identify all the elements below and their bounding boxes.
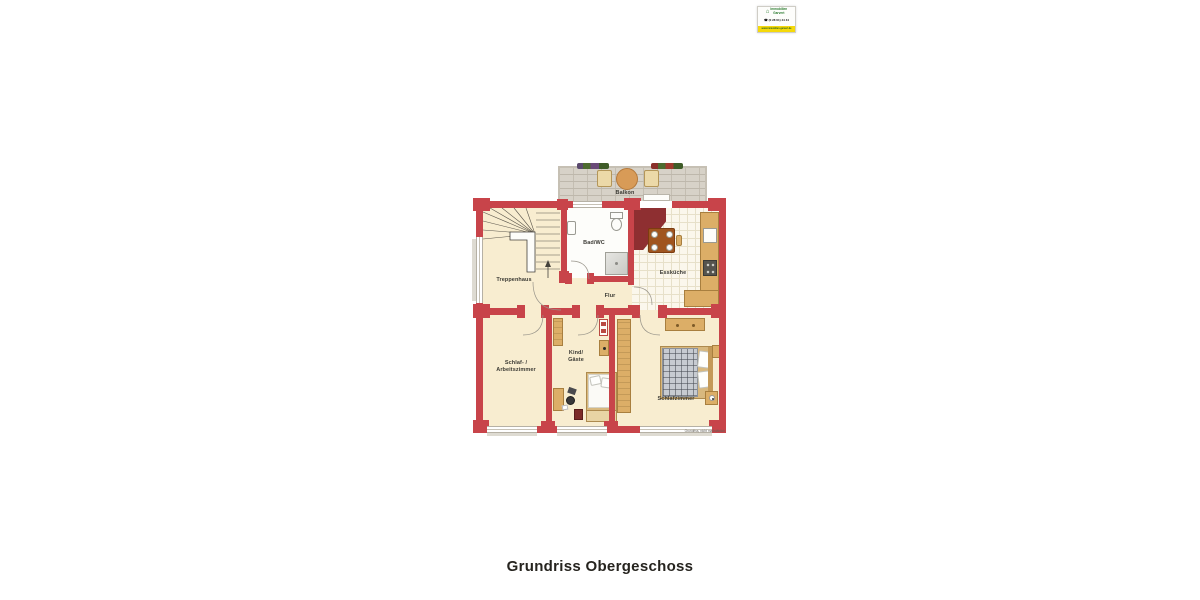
door-arc-bedroom	[640, 315, 660, 335]
agency-website: www.immobilien-garvert.de	[758, 26, 795, 32]
balcony-door-leaf	[643, 194, 670, 201]
page-title: Grundriss Obergeschoss	[0, 558, 1200, 575]
house-icon: ⌂	[766, 9, 770, 15]
agency-phone: ☎ (0 28 61) 44 44	[758, 17, 795, 23]
agency-logo-header: ⌂ ImmobilienGarvert	[758, 7, 795, 17]
window-sill	[640, 433, 712, 436]
flower-box-right	[651, 163, 683, 169]
room-label-bad-wc: Bad/WC	[583, 240, 605, 246]
window-sill	[557, 433, 607, 436]
agency-logo: ⌂ ImmobilienGarvert ☎ (0 28 61) 44 44 ww…	[757, 6, 796, 33]
door-arc-study	[523, 315, 543, 335]
room-label-kind-line2: Gäste	[568, 357, 584, 363]
door-arcs	[523, 261, 660, 335]
room-label-schlaf-line2: Arbeitszimmer	[496, 367, 536, 373]
room-label-flur: Flur	[605, 293, 616, 299]
door-arc-child-room	[578, 315, 598, 335]
door-arc-kitchen	[634, 287, 652, 305]
room-label-schlaf-line1: Schlaf- /	[505, 360, 527, 366]
room-label-schlaf-arbeitszimmer: Schlaf- /Arbeitszimmer	[496, 360, 536, 374]
floorplan-page: ⌂ ImmobilienGarvert ☎ (0 28 61) 44 44 ww…	[0, 0, 1200, 600]
room-label-balkon: Balkon	[616, 190, 635, 196]
balcony-chair-right	[644, 170, 659, 187]
room-label-schlafzimmer: Schlafzimmer	[658, 396, 695, 402]
stairs-core	[510, 232, 535, 272]
window-sill	[487, 433, 537, 436]
room-label-esskueche: Essküche	[660, 270, 686, 276]
room-label-treppenhaus: Treppenhaus	[496, 277, 531, 283]
room-label-kind-line1: Kind/	[569, 350, 583, 356]
balcony-table	[616, 168, 638, 190]
agency-name-line2: Garvert	[773, 11, 784, 15]
door-arc-stairwell	[533, 282, 561, 310]
agency-name: ImmobilienGarvert	[770, 8, 787, 15]
plan-disclaimer: Grundriss, nicht maßstäblich	[685, 429, 725, 433]
flower-box-left	[577, 163, 609, 169]
door-arc-bath	[571, 261, 589, 279]
stairs-direction-arrow	[545, 260, 551, 267]
balcony-chair-left	[597, 170, 612, 187]
room-label-kind-gaeste: Kind/Gäste	[568, 350, 584, 364]
